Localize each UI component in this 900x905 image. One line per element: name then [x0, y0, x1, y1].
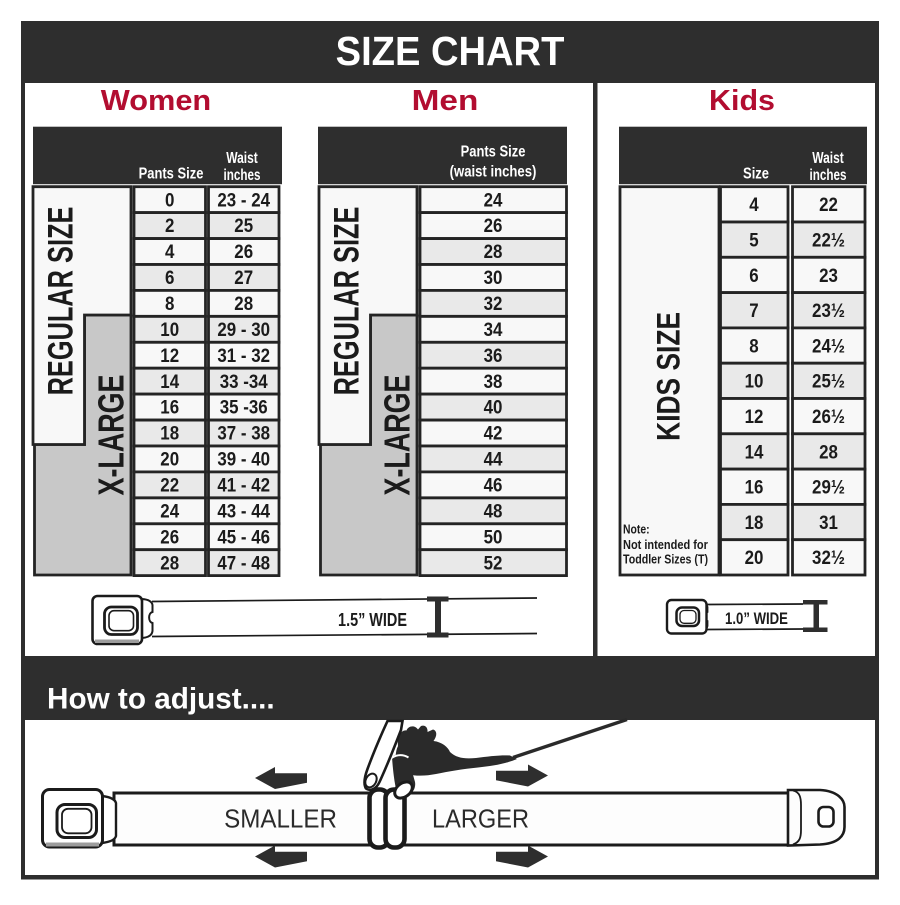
svg-text:KIDS SIZE: KIDS SIZE: [651, 312, 687, 441]
svg-text:28: 28: [160, 552, 179, 573]
svg-text:1.0” WIDE: 1.0” WIDE: [725, 609, 788, 628]
svg-text:30: 30: [484, 267, 503, 288]
svg-text:SIZE CHART: SIZE CHART: [336, 29, 565, 75]
svg-text:Size: Size: [743, 165, 769, 183]
svg-text:32: 32: [484, 293, 503, 314]
svg-text:39 - 40: 39 - 40: [217, 449, 270, 470]
svg-text:Pants Size: Pants Size: [139, 165, 204, 183]
svg-text:14: 14: [160, 371, 179, 392]
svg-text:28: 28: [234, 293, 253, 314]
svg-text:4: 4: [165, 241, 174, 262]
svg-text:34: 34: [484, 319, 503, 340]
svg-text:37 - 38: 37 - 38: [217, 423, 270, 444]
svg-text:23½: 23½: [812, 300, 845, 321]
svg-text:18: 18: [160, 423, 179, 444]
svg-text:10: 10: [160, 319, 179, 340]
svg-text:32½: 32½: [812, 547, 845, 568]
svg-text:43 - 44: 43 - 44: [217, 501, 270, 522]
svg-text:16: 16: [160, 397, 179, 418]
svg-text:8: 8: [165, 293, 174, 314]
svg-text:Note:: Note:: [623, 522, 650, 536]
svg-text:22½: 22½: [812, 230, 845, 251]
svg-text:28: 28: [819, 441, 838, 462]
svg-text:29½: 29½: [812, 477, 845, 498]
svg-text:42: 42: [484, 423, 503, 444]
svg-text:2: 2: [165, 215, 174, 236]
svg-text:31: 31: [819, 512, 838, 533]
svg-text:25½: 25½: [812, 371, 845, 392]
svg-text:44: 44: [484, 449, 503, 470]
svg-text:22: 22: [819, 194, 838, 215]
svg-text:10: 10: [745, 371, 764, 392]
svg-text:5: 5: [749, 230, 758, 251]
svg-text:20: 20: [160, 449, 179, 470]
svg-text:Waist: Waist: [812, 148, 844, 166]
svg-text:6: 6: [749, 265, 758, 286]
svg-text:Waist: Waist: [226, 148, 258, 166]
svg-text:47 - 48: 47 - 48: [217, 552, 270, 573]
svg-text:0: 0: [165, 189, 174, 210]
svg-text:24: 24: [160, 501, 179, 522]
svg-text:REGULAR SIZE: REGULAR SIZE: [42, 207, 81, 396]
svg-text:SMALLER: SMALLER: [224, 805, 337, 834]
svg-text:46: 46: [484, 475, 503, 496]
svg-text:12: 12: [745, 406, 764, 427]
svg-text:inches: inches: [810, 165, 847, 183]
svg-text:24½: 24½: [812, 335, 845, 356]
svg-text:33 -34: 33 -34: [220, 371, 268, 392]
svg-text:29 - 30: 29 - 30: [217, 319, 270, 340]
svg-text:31 - 32: 31 - 32: [217, 345, 270, 366]
svg-text:20: 20: [745, 547, 764, 568]
svg-text:45 - 46: 45 - 46: [217, 526, 270, 547]
svg-text:41 - 42: 41 - 42: [217, 475, 270, 496]
svg-text:Not intended for: Not intended for: [623, 537, 708, 552]
svg-text:50: 50: [484, 526, 503, 547]
svg-text:6: 6: [165, 267, 174, 288]
svg-text:35 -36: 35 -36: [220, 397, 268, 418]
svg-text:inches: inches: [224, 165, 261, 183]
svg-text:26½: 26½: [812, 406, 845, 427]
svg-text:How to adjust....: How to adjust....: [47, 682, 275, 715]
svg-text:25: 25: [234, 215, 253, 236]
svg-text:X-LARGE: X-LARGE: [91, 375, 132, 496]
svg-text:40: 40: [484, 397, 503, 418]
svg-text:48: 48: [484, 501, 503, 522]
svg-text:52: 52: [484, 552, 503, 573]
svg-text:Kids: Kids: [709, 85, 775, 117]
svg-text:23 - 24: 23 - 24: [217, 189, 270, 210]
svg-text:12: 12: [160, 345, 179, 366]
svg-text:8: 8: [749, 335, 758, 356]
svg-text:X-LARGE: X-LARGE: [377, 375, 418, 496]
svg-text:REGULAR SIZE: REGULAR SIZE: [328, 207, 367, 396]
svg-text:Men: Men: [412, 84, 479, 116]
svg-text:27: 27: [234, 267, 253, 288]
svg-text:23: 23: [819, 265, 838, 286]
svg-text:14: 14: [745, 441, 764, 462]
svg-text:18: 18: [745, 512, 764, 533]
svg-text:26: 26: [484, 215, 503, 236]
svg-text:16: 16: [745, 477, 764, 498]
svg-text:36: 36: [484, 345, 503, 366]
svg-text:1.5” WIDE: 1.5” WIDE: [338, 609, 407, 630]
svg-text:22: 22: [160, 475, 179, 496]
svg-text:Toddler Sizes (T): Toddler Sizes (T): [623, 551, 708, 566]
svg-text:LARGER: LARGER: [432, 806, 529, 834]
svg-text:26: 26: [160, 526, 179, 547]
svg-text:7: 7: [749, 300, 758, 321]
svg-text:4: 4: [749, 194, 758, 215]
svg-text:Pants Size: Pants Size: [461, 143, 526, 161]
svg-text:26: 26: [234, 241, 253, 262]
svg-text:38: 38: [484, 371, 503, 392]
svg-text:28: 28: [484, 241, 503, 262]
svg-text:24: 24: [484, 189, 503, 210]
svg-text:(waist inches): (waist inches): [450, 163, 537, 180]
svg-text:Women: Women: [101, 85, 211, 117]
